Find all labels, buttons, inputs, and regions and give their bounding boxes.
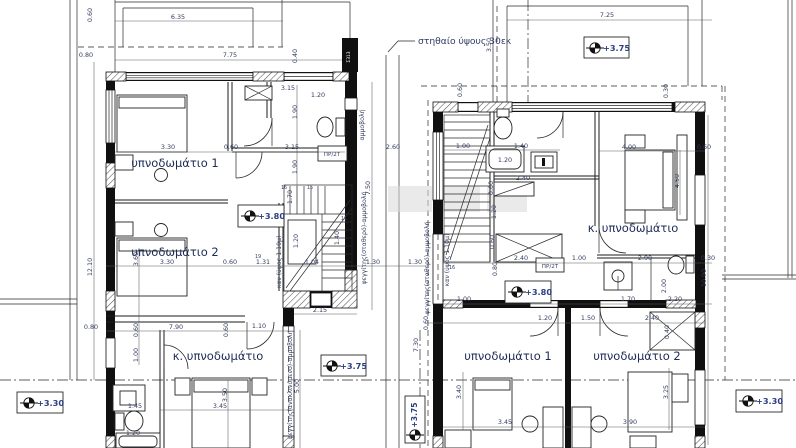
dim-label: 0.60 xyxy=(487,181,495,195)
dim-label: 1.20 xyxy=(538,314,552,322)
dim-label: 1.90 xyxy=(291,105,299,119)
dim-label: 1.20 xyxy=(126,429,140,437)
dim-label: 1.30 xyxy=(366,258,380,266)
right-roof-canopy xyxy=(421,0,722,102)
dim-label: 0.60 xyxy=(224,143,238,151)
dim-label: 1.70 xyxy=(286,190,294,204)
dim-label: 0.30 xyxy=(662,84,670,98)
dim-label: 1.45 xyxy=(128,402,142,410)
room-label-right-master: κ. υπνοδωμάτιο xyxy=(588,221,679,235)
wall-text-fegitis-left: φεγγίτης(σταθερό)-αμμοβολή xyxy=(360,192,368,285)
dim-label: 3.30 xyxy=(161,143,175,151)
dim-label: 1.20 xyxy=(498,156,512,164)
level-value: +3.80 xyxy=(525,287,552,297)
nightstand xyxy=(115,222,133,236)
level-marker: +3.75 xyxy=(584,37,630,58)
dim-label: 7.25 xyxy=(600,11,614,19)
wall-annotations: αμμοβολή φεγγίτης(σταθερό)-αμμοβολή φεγγ… xyxy=(275,109,451,439)
desk xyxy=(543,407,563,448)
parapet-note-text: στηθαίο ύψους 30εκ xyxy=(418,36,512,47)
floor-plan-svg: Σ313 xyxy=(0,0,796,448)
dim-label: 0.40 xyxy=(663,325,671,339)
wall-text-fegitis-anaklinomeno: φεγγίτης(ανακλινόμενο)-αμμοβολή xyxy=(286,330,294,439)
stair-number: 16 xyxy=(281,185,287,191)
table-lamp xyxy=(155,224,168,237)
level-value: +3.30 xyxy=(37,398,64,408)
level-marker: +3.80 xyxy=(505,281,552,303)
dim-label: 2.90 xyxy=(638,254,652,262)
dim-label: 1.20 xyxy=(311,91,325,99)
room-label-left-bedroom2: υπνοδωμάτιο 2 xyxy=(131,245,218,259)
table-lamp xyxy=(155,169,168,182)
dim-label: 1.90 xyxy=(291,160,299,174)
level-value: +3.80 xyxy=(258,211,285,221)
level-marker: +3.80 xyxy=(238,205,285,227)
dim-label: 10.90 xyxy=(700,269,708,287)
pr2t-label-left: ΠΡ/2Τ xyxy=(324,152,341,158)
dim-label: 1.00 xyxy=(457,295,471,303)
level-marker: +3.30 xyxy=(17,392,64,413)
dim-label: 0.80 xyxy=(84,323,98,331)
dim-label: 1.00 xyxy=(572,254,586,262)
room-label-right-bedroom2: υπνοδωμάτιο 2 xyxy=(593,349,680,363)
dim-label: 7.90 xyxy=(169,323,183,331)
stair-number: 15 xyxy=(307,185,313,191)
stool xyxy=(522,416,538,432)
desk xyxy=(572,407,591,448)
toilet xyxy=(668,256,694,274)
dim-label: 2.40 xyxy=(514,254,528,262)
dim-label: 0.60 xyxy=(697,143,711,151)
dim-label: 0.60 xyxy=(456,83,464,97)
level-value: +3.75 xyxy=(603,43,630,53)
room-label-right-bedroom1: υπνοδωμάτιο 1 xyxy=(464,349,551,363)
toilet xyxy=(317,117,345,137)
dim-label: 6.35 xyxy=(171,13,185,21)
dim-label: 1.00 xyxy=(132,348,140,362)
left-roof-canopy xyxy=(78,0,350,72)
level-marker: +3.75 xyxy=(405,396,425,443)
dim-label: 0.30 xyxy=(701,254,715,262)
dim-label: 2.20 xyxy=(668,295,682,303)
dim-label: 2.15 xyxy=(313,306,327,314)
dim-label: 1.50 xyxy=(581,314,595,322)
dim-label: 2.40 xyxy=(645,314,659,322)
shower xyxy=(245,86,272,100)
left-unit-furniture xyxy=(113,86,347,448)
dim-label: 4.50 xyxy=(673,174,681,188)
dim-label: 0.60 xyxy=(422,316,430,330)
dim-label: 7.75 xyxy=(223,51,237,59)
dim-label: 0.80 xyxy=(491,262,499,276)
sink xyxy=(531,152,557,172)
level-value: +3.75 xyxy=(410,402,419,427)
nightstand xyxy=(445,430,471,448)
toilet xyxy=(115,411,143,431)
dim-label: 2.60 xyxy=(386,143,400,151)
stair-number: 11 xyxy=(341,216,347,222)
level-marker: +3.75 xyxy=(321,355,367,376)
dim-label: 1.00 xyxy=(456,142,470,150)
dim-label: 1.40 xyxy=(514,142,528,150)
dim-label: 1.20 xyxy=(292,234,300,248)
dim-label: 1.20 xyxy=(490,205,498,219)
dim-label: 0.60 xyxy=(223,258,237,266)
dim-label: 7.30 xyxy=(412,338,420,352)
dim-label: 3.25 xyxy=(662,385,670,399)
dim-label: 3.50 xyxy=(221,388,229,402)
dim-label: 0.60 xyxy=(86,8,94,22)
dim-label: 1.30 xyxy=(408,258,422,266)
nightstand xyxy=(630,436,656,448)
level-marker: +3.30 xyxy=(736,390,783,412)
dim-label: 1.40 xyxy=(333,231,341,245)
dim-label: 2.00 xyxy=(660,279,668,293)
level-value: +3.75 xyxy=(340,361,367,371)
wall-text-railing-right: καν (ύψος 1.10μ) xyxy=(443,234,451,287)
dim-label: 1.04 xyxy=(305,258,319,266)
floor-plan-drawing: Σ313 xyxy=(0,0,796,448)
dim-label: 0.80 xyxy=(79,51,93,59)
level-value: +3.30 xyxy=(756,396,783,406)
shower xyxy=(604,262,632,290)
dim-label: 3.90 xyxy=(623,418,637,426)
dim-label: 3.45 xyxy=(498,418,512,426)
dim-label: 4.00 xyxy=(622,143,636,151)
dim-label: 3.40 xyxy=(455,385,463,399)
dim-label: 3.30 xyxy=(160,258,174,266)
shaft-label: Σ313 xyxy=(346,51,352,62)
wall-text-fegitis-right: φεγγίτης(σταθερό)-αμμοβολή xyxy=(423,222,431,315)
stair-number: 19 xyxy=(255,254,261,260)
dim-label: 1.70 xyxy=(621,295,635,303)
nightstand xyxy=(252,378,267,395)
dim-label: 2.40 xyxy=(516,174,530,182)
nightstand xyxy=(175,378,190,395)
dim-label: 3.15 xyxy=(281,84,295,92)
room-label-left-bedroom1: υπνοδωμάτιο 1 xyxy=(131,156,218,170)
dim-label: 3.15 xyxy=(285,143,299,151)
pr2t-label-right: ΠΡ/2Τ xyxy=(542,264,559,270)
dim-label: 0.60 xyxy=(222,323,230,337)
stool xyxy=(591,416,607,432)
wall-text-ammovoli: αμμοβολή xyxy=(358,109,366,140)
dim-label: 0.40 xyxy=(291,49,299,63)
dim-label: 0.60 xyxy=(132,323,140,337)
dim-label: 3.45 xyxy=(213,402,227,410)
dim-label: 12.10 xyxy=(86,258,94,276)
wall-text-railing-left: καν (ύψος 1.10μ) xyxy=(275,236,283,289)
room-label-left-master: κ. υπνοδωμάτιο xyxy=(173,349,264,363)
dim-label: 0.60 xyxy=(488,235,496,249)
toilet xyxy=(494,109,512,139)
dim-label: 5.00 xyxy=(293,379,301,393)
dim-label: 1.10 xyxy=(252,322,266,330)
